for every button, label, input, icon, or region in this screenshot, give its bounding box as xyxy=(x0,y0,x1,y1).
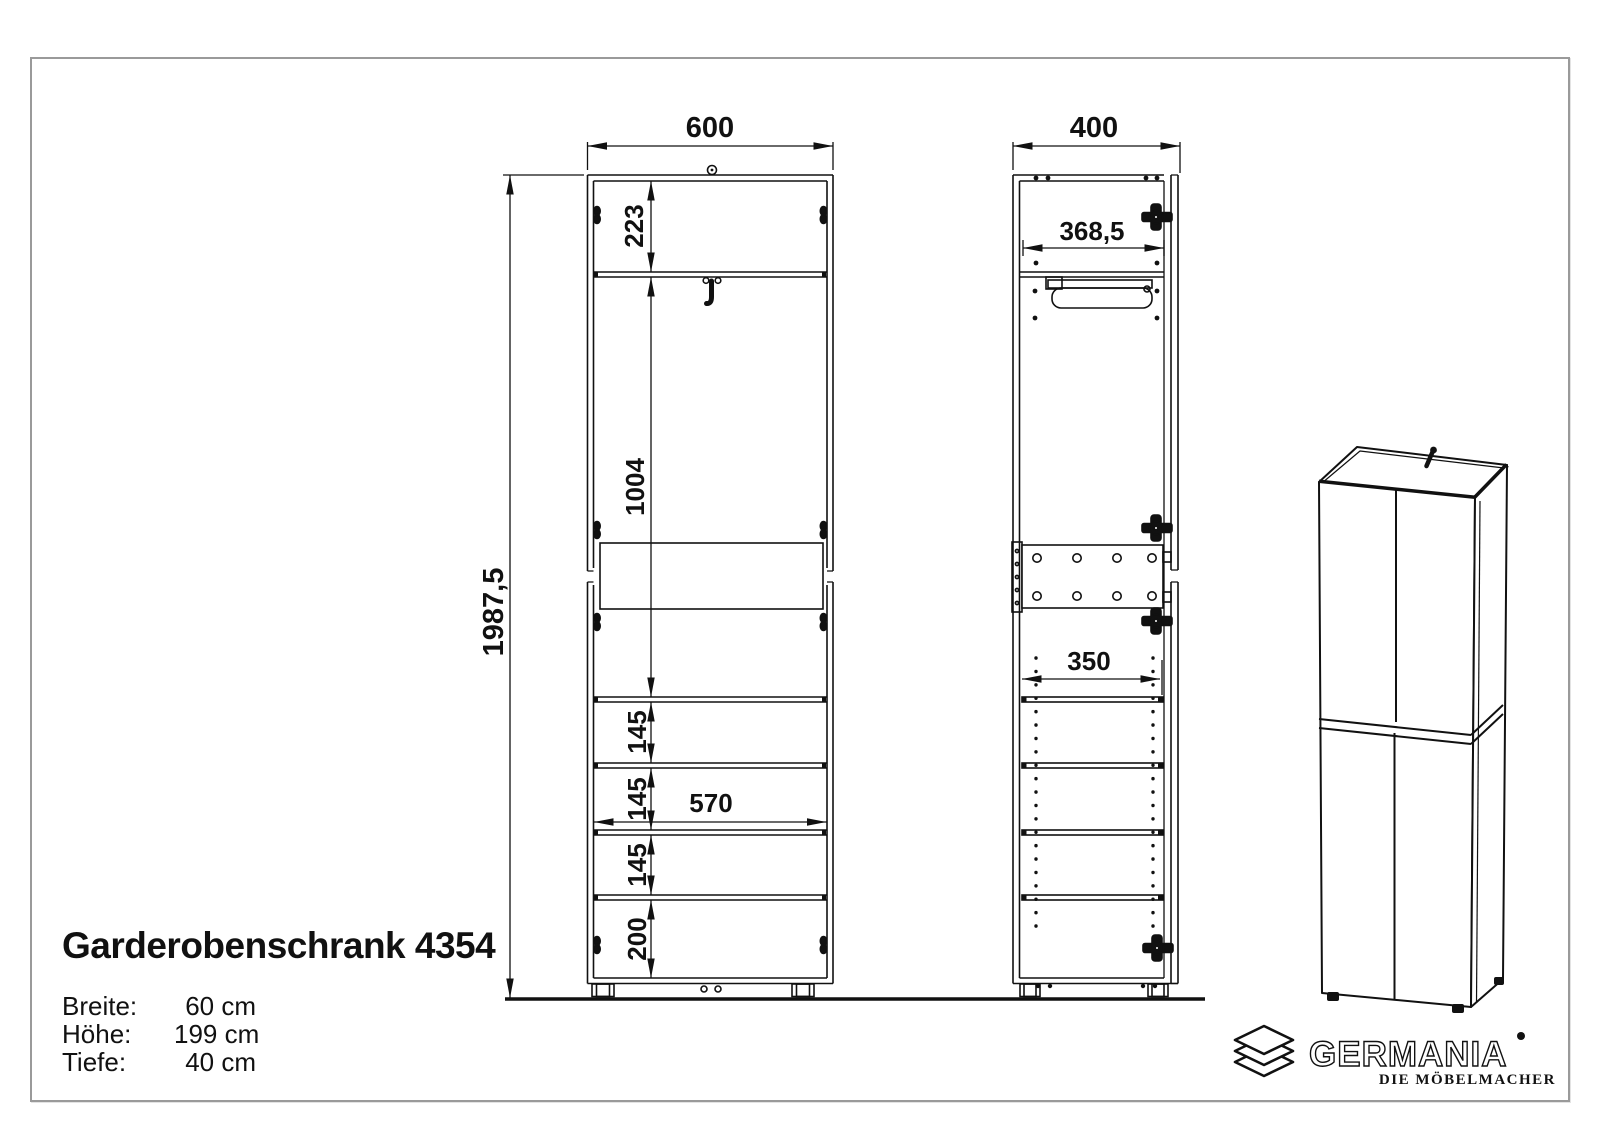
shelf-gap-label-2: 145 xyxy=(622,777,652,820)
shelf-gap-label-3: 145 xyxy=(622,843,652,886)
technical-drawing-page: { "drawing": { "title": "Garderobenschra… xyxy=(0,0,1600,1131)
spec-list: Breite: 60 cm Höhe: 199 cm Tiefe: 40 cm xyxy=(62,992,256,1076)
inner-depth-label: 368,5 xyxy=(1059,216,1124,246)
front-width-label: 600 xyxy=(686,112,734,144)
spec-label: Tiefe: xyxy=(62,1048,174,1076)
spec-row-height: Höhe: 199 cm xyxy=(62,1020,256,1048)
middle-band-panel xyxy=(600,543,823,609)
bottom-compartment-label: 200 xyxy=(622,917,652,960)
hanger-hook-icon xyxy=(703,278,721,304)
perspective-view xyxy=(1319,447,1507,1013)
spec-value: 199 cm xyxy=(174,1020,256,1048)
brand-tagline: DIE MÖBELMACHER xyxy=(1379,1071,1556,1088)
top-compartment-label: 223 xyxy=(619,204,649,247)
spec-value: 60 cm xyxy=(174,992,256,1020)
shelf-depth-label: 350 xyxy=(1067,646,1110,676)
inner-width-label: 570 xyxy=(689,788,732,818)
side-feet xyxy=(1020,984,1168,997)
spec-label: Breite: xyxy=(62,992,174,1020)
layers-icon xyxy=(1235,1026,1293,1076)
side-band-panel xyxy=(1012,542,1171,612)
title-block: Garderobenschrank 4354 xyxy=(62,925,495,967)
top-mount-icon xyxy=(708,166,717,175)
brand-wordmark: GERMANIA xyxy=(1309,1035,1508,1074)
side-depth-label: 400 xyxy=(1070,112,1118,144)
wardrobe-compartment-label: 1004 xyxy=(620,458,650,516)
side-view xyxy=(1012,175,1178,997)
registered-dot xyxy=(1517,1032,1525,1040)
front-feet xyxy=(592,984,814,997)
clothes-rail xyxy=(1046,277,1152,308)
spec-value: 40 cm xyxy=(174,1048,256,1076)
spec-row-depth: Tiefe: 40 cm xyxy=(62,1048,256,1076)
side-shelf-pins xyxy=(1022,698,1163,901)
total-height-label: 1987,5 xyxy=(478,568,510,657)
spec-row-width: Breite: 60 cm xyxy=(62,992,256,1020)
product-title: Garderobenschrank 4354 xyxy=(62,925,495,967)
shelf-gap-label-1: 145 xyxy=(622,710,652,753)
brand-logo: GERMANIA DIE MÖBELMACHER xyxy=(1235,1026,1556,1088)
spec-label: Höhe: xyxy=(62,1020,174,1048)
